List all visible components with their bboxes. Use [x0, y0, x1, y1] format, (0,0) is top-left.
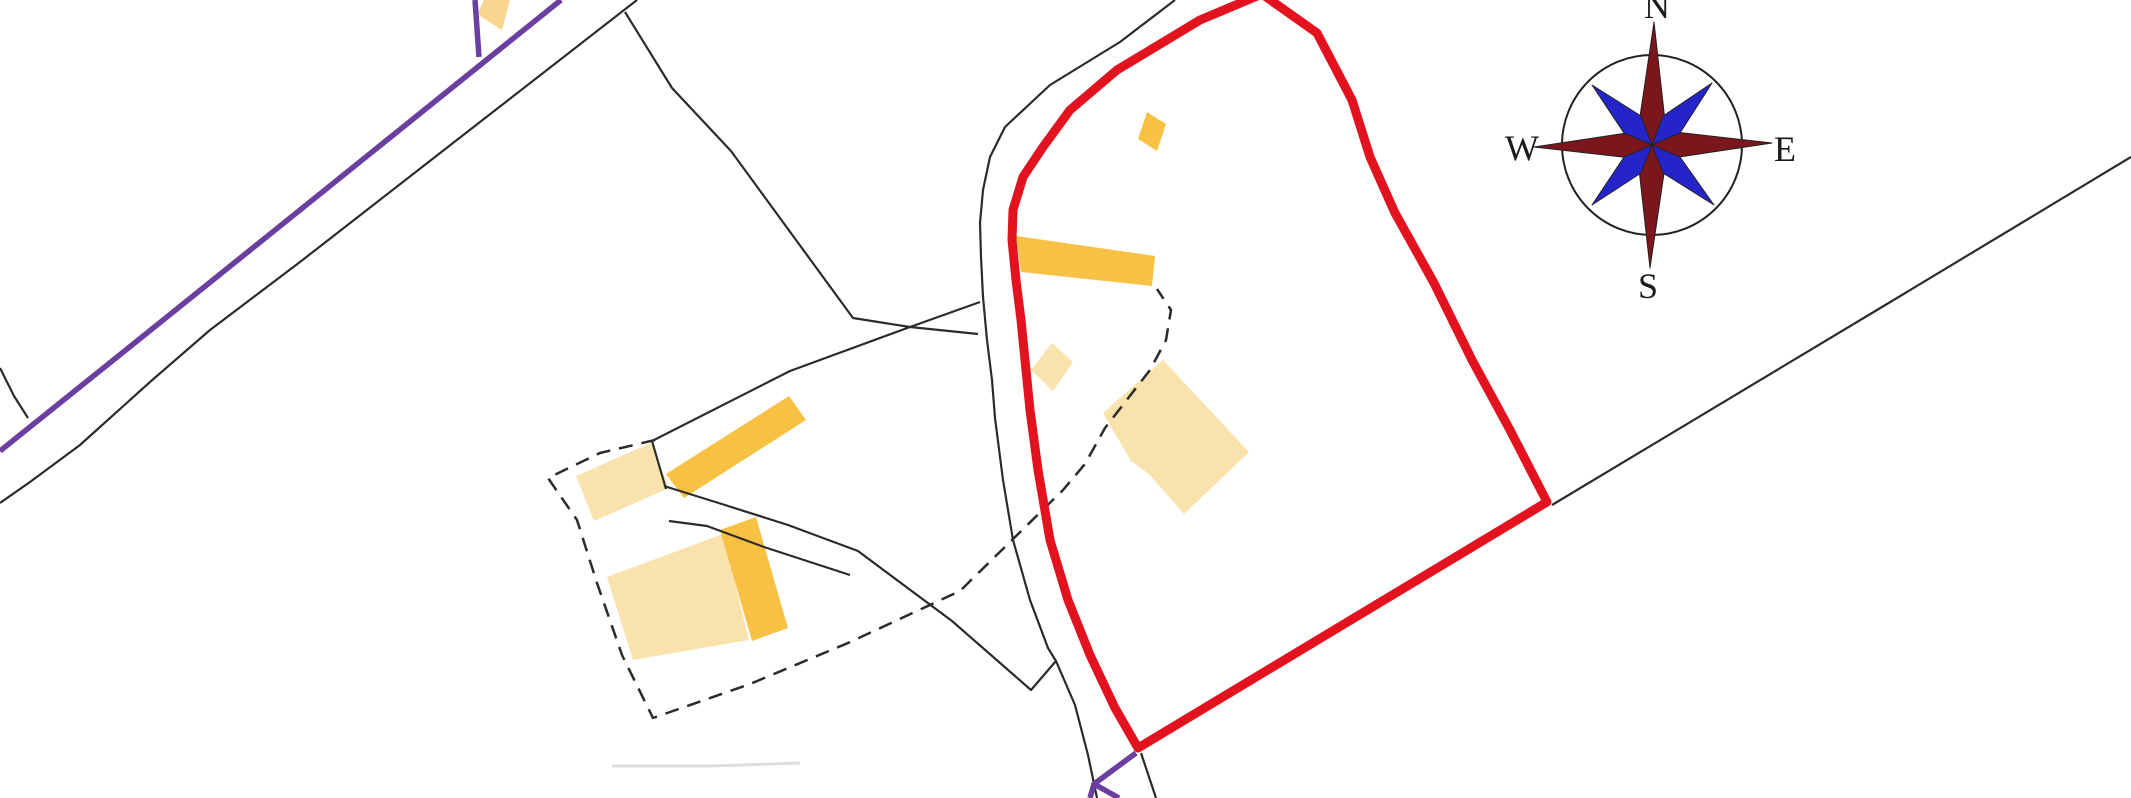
site-boundary-red [1012, 0, 1547, 748]
site-plan-map: NWES [0, 0, 2131, 798]
road-purple-bottom-fragment [1094, 753, 1136, 798]
parcel-line-road-left-edge [0, 0, 637, 503]
pale-building-main-in-site [1103, 360, 1249, 514]
road-purple-stub [475, 0, 479, 57]
orange-building-small-top [1138, 112, 1166, 151]
map-canvas: NWES [0, 0, 2131, 798]
parcel-line-stub-below-red-corner [1141, 753, 1156, 798]
orange-building-long-north [1016, 236, 1155, 286]
faint-erased-line [612, 763, 800, 766]
parcel-line-left-branch-curve [0, 368, 28, 418]
orange-building-farm-diagonal [666, 396, 806, 498]
parcel-line-cross-field [652, 302, 980, 441]
road-purple-bottom-spur [1090, 784, 1094, 798]
pale-building-small-diamond [1031, 343, 1073, 391]
parcel-line-long-east-boundary [1552, 157, 2131, 505]
parcel-line-top-field [625, 12, 978, 334]
compass-label-east: E [1774, 129, 1796, 169]
road-purple-main [0, 0, 561, 451]
compass-label-south: S [1638, 266, 1658, 306]
compass-label-north: N [1644, 0, 1670, 26]
orange-building-top-left-road [477, 0, 511, 30]
compass-label-west: W [1505, 128, 1539, 168]
